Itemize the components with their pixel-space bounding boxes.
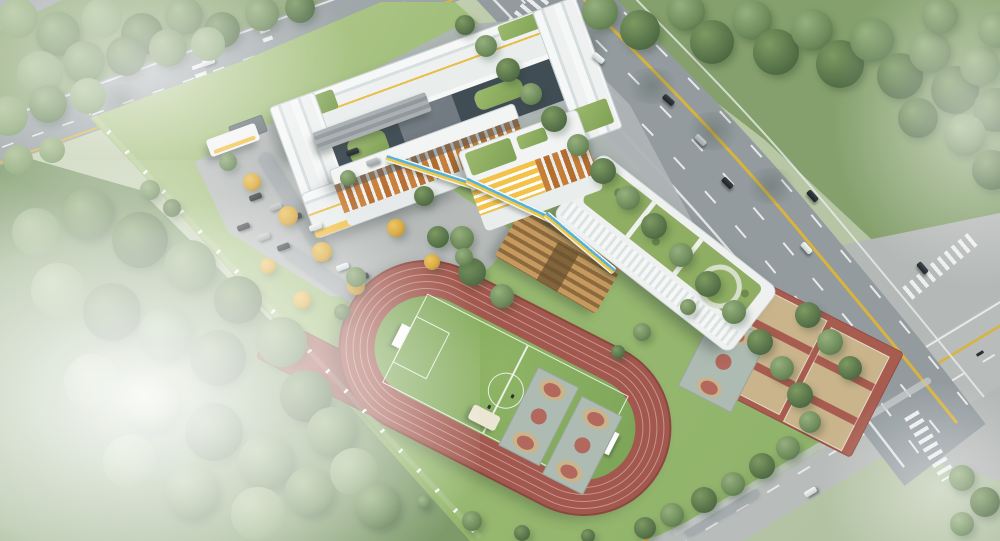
forest-tree xyxy=(231,487,285,541)
street-tree xyxy=(541,106,567,132)
tree xyxy=(219,153,237,171)
street-tree xyxy=(496,58,520,82)
forest-tree xyxy=(139,307,193,361)
forest-tree xyxy=(944,114,986,156)
forest-tree xyxy=(31,263,85,317)
forest-tree xyxy=(285,467,335,517)
forest-tree xyxy=(149,29,187,67)
forest-tree xyxy=(214,276,262,324)
tree xyxy=(163,199,181,217)
street-tree xyxy=(520,83,542,105)
tree xyxy=(611,345,625,359)
tree xyxy=(427,226,449,248)
forest-tree xyxy=(238,434,294,490)
forest-tree xyxy=(620,10,660,50)
autumn-tree xyxy=(424,254,440,270)
tree xyxy=(455,248,473,266)
forest-tree xyxy=(3,145,33,175)
street-tree xyxy=(799,411,821,433)
forest-tree xyxy=(960,46,1000,86)
forest-tree xyxy=(690,20,734,64)
tree xyxy=(450,226,474,250)
tree xyxy=(414,186,434,206)
aerial-campus-rendering xyxy=(0,0,1000,541)
tree-shadow xyxy=(622,68,682,104)
tree xyxy=(817,329,843,355)
autumn-tree xyxy=(312,242,332,262)
tree-shadow xyxy=(682,112,744,150)
forest-tree xyxy=(103,435,157,489)
court-center-circle xyxy=(572,435,594,457)
tree xyxy=(691,487,717,513)
street-tree xyxy=(455,15,475,35)
tree xyxy=(680,299,696,315)
tree xyxy=(462,511,482,531)
forest-tree xyxy=(190,330,246,386)
forest-tree xyxy=(257,317,307,367)
court-center-circle xyxy=(713,351,735,373)
street-tree xyxy=(770,356,794,380)
forest-tree xyxy=(191,27,225,61)
tree xyxy=(660,503,684,527)
street-tree xyxy=(722,300,746,324)
forest-tree xyxy=(185,403,243,461)
forest-tree xyxy=(39,137,65,163)
forest-tree xyxy=(164,464,220,520)
forest-tree xyxy=(106,36,146,76)
tree-shadow xyxy=(742,168,800,204)
forest-tree xyxy=(64,354,120,410)
player xyxy=(487,404,491,409)
tree xyxy=(795,302,821,328)
street-tree xyxy=(747,329,773,355)
forest-tree xyxy=(122,374,182,434)
tree xyxy=(140,180,160,200)
court-center-circle xyxy=(528,406,550,428)
forest-tree xyxy=(909,31,951,73)
street-tree xyxy=(669,243,693,267)
forest-tree xyxy=(62,188,114,240)
tree xyxy=(633,323,651,341)
autumn-tree xyxy=(243,173,261,191)
street-tree xyxy=(590,158,616,184)
forest-tree xyxy=(12,208,60,256)
street-tree xyxy=(641,213,667,239)
forest-tree xyxy=(83,283,141,341)
tree xyxy=(970,487,1000,517)
autumn-tree xyxy=(387,219,405,237)
street-tree xyxy=(695,271,721,297)
tree xyxy=(721,472,745,496)
tree xyxy=(334,304,350,320)
tree xyxy=(417,495,431,509)
tree xyxy=(490,284,514,308)
tree xyxy=(634,517,656,539)
autumn-tree xyxy=(260,258,276,274)
forest-tree xyxy=(70,78,106,114)
street-tree xyxy=(567,134,589,156)
forest-tree xyxy=(164,240,216,292)
tree xyxy=(949,465,975,491)
tree xyxy=(776,436,800,460)
tree xyxy=(950,512,974,536)
street-tree xyxy=(475,35,497,57)
tree xyxy=(514,525,530,541)
forest-tree xyxy=(898,98,938,138)
autumn-tree xyxy=(278,206,298,226)
autumn-tree xyxy=(293,291,311,309)
street-tree xyxy=(616,186,640,210)
forest-tree xyxy=(355,483,401,529)
tree xyxy=(581,529,595,541)
forest-tree xyxy=(112,212,168,268)
forest-tree xyxy=(63,41,105,83)
tree xyxy=(838,356,862,380)
street-tree xyxy=(787,382,813,408)
tree xyxy=(346,267,366,287)
tree xyxy=(340,170,356,186)
tree xyxy=(749,453,775,479)
forest-tree xyxy=(29,85,67,123)
